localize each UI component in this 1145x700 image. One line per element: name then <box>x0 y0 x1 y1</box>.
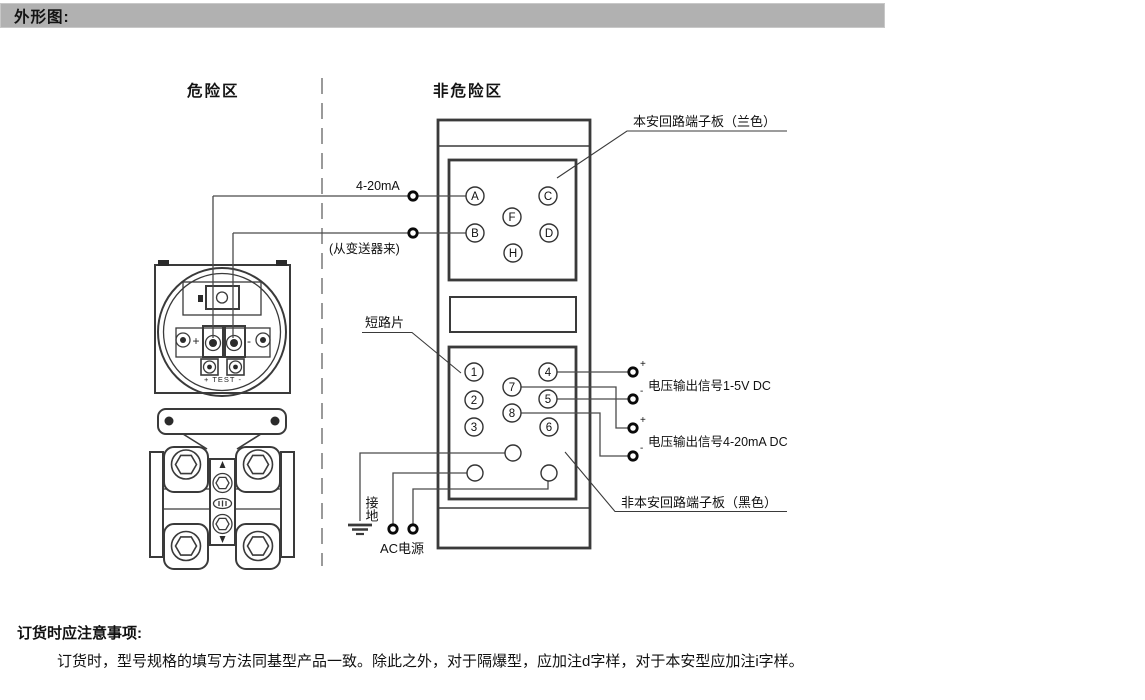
leader-is-board <box>557 131 787 178</box>
mounting-bracket <box>158 409 286 434</box>
window-screw <box>217 292 228 303</box>
junction-dot <box>409 192 417 200</box>
faceplate-mark <box>198 295 203 302</box>
terminal-6-label: 6 <box>546 422 552 434</box>
voltage-1-5v-label: 电压输出信号1-5V DC <box>648 378 771 393</box>
terminal-bolt-plus-center <box>209 339 217 347</box>
ac-power-terminal <box>409 525 417 533</box>
output-terminal-1-5v-plus <box>629 368 637 376</box>
terminal-8-label: 8 <box>509 408 515 420</box>
wire-ac-2 <box>413 481 548 524</box>
polarity-mark: - <box>640 443 643 454</box>
terminal-3: 3 <box>465 418 483 436</box>
strip-screw-left-center <box>180 337 186 343</box>
flange-body <box>150 447 294 569</box>
mounting-hole <box>467 465 483 481</box>
terminal-7: 7 <box>503 378 521 396</box>
test-terminal-left-center <box>207 365 212 370</box>
test-terminal-right-center <box>233 365 238 370</box>
short-bar-label: 短路片 <box>365 315 404 330</box>
terminal-2: 2 <box>465 391 483 409</box>
mounting-hole <box>505 445 521 461</box>
plus-sign: + <box>192 334 199 348</box>
terminal-D: D <box>540 224 558 242</box>
terminal-C-label: C <box>544 191 552 203</box>
polarity-mark: + <box>640 415 646 426</box>
polarity-mark: - <box>640 386 643 397</box>
output-terminal-4-20ma-minus <box>629 452 637 460</box>
is-terminals: A C F B D H <box>466 187 558 262</box>
wiring-diagram: 危险区 非危险区 + - + TEST - <box>0 0 1145 700</box>
terminal-A-label: A <box>471 191 479 203</box>
non-hazardous-zone-label: 非危险区 <box>433 81 503 100</box>
flange-ear <box>164 447 208 492</box>
mounting-hole <box>541 465 557 481</box>
notes-heading: 订货时应注意事项: <box>17 622 1120 643</box>
test-label: + TEST - <box>204 375 242 384</box>
terminal-F: F <box>503 208 521 226</box>
terminal-2-label: 2 <box>471 395 477 407</box>
ground-label: 接地 <box>364 495 379 522</box>
terminal-F-label: F <box>508 212 515 224</box>
bracket-bolt-left <box>165 417 174 426</box>
terminal-6: 6 <box>540 418 558 436</box>
terminal-B: B <box>466 224 484 242</box>
ground-symbol <box>348 525 372 534</box>
terminal-3-label: 3 <box>471 422 477 434</box>
terminal-C: C <box>539 187 557 205</box>
terminal-1-label: 1 <box>471 367 477 379</box>
flange-ear <box>236 447 280 492</box>
output-terminal-1-5v-minus <box>629 395 637 403</box>
board-outline <box>438 120 590 548</box>
polarity-mark: + <box>640 359 646 370</box>
terminal-5: 5 <box>539 390 557 408</box>
leader-short-bar <box>362 333 461 374</box>
side-plate-left <box>150 452 163 557</box>
notes-body: 订货时，型号规格的填写方法同基型产品一致。除此之外，对于隔爆型，应加注d字样，对… <box>57 650 1120 671</box>
ac-power-label: AC电源 <box>380 541 424 556</box>
terminal-bolt-minus-center <box>230 339 238 347</box>
ac-power-terminal <box>389 525 397 533</box>
strip-screw-right-center <box>260 337 266 343</box>
non-is-board-label: 非本安回路端子板（黑色） <box>621 495 777 510</box>
bracket-bolt-right <box>271 417 280 426</box>
terminal-B-label: B <box>471 228 479 240</box>
ordering-notes: 订货时应注意事项: 订货时，型号规格的填写方法同基型产品一致。除此之外，对于隔爆… <box>0 622 1120 671</box>
terminal-4: 4 <box>539 363 557 381</box>
minus-sign: - <box>247 334 251 348</box>
terminal-H-label: H <box>509 248 517 260</box>
terminal-1: 1 <box>465 363 483 381</box>
junction-dot <box>409 229 417 237</box>
housing-corner-mark <box>276 260 287 266</box>
terminal-A: A <box>466 187 484 205</box>
voltage-4-20ma-label: 电压输出信号4-20mA DC <box>648 434 788 449</box>
from-transmitter-label: (从变送器来) <box>329 241 400 256</box>
terminal-7-label: 7 <box>509 382 515 394</box>
terminal-D-label: D <box>545 228 553 240</box>
terminal-H: H <box>504 244 522 262</box>
transmitter-drawing: + - + TEST - <box>150 260 294 569</box>
housing-corner-mark <box>158 260 169 266</box>
side-plate-right <box>281 452 294 557</box>
hazardous-zone-label: 危险区 <box>187 81 240 100</box>
wire-ground <box>360 453 505 521</box>
jumper-box <box>450 297 576 332</box>
terminal-board <box>438 120 590 548</box>
current-loop-label: 4-20mA <box>356 179 400 193</box>
terminal-4-label: 4 <box>545 367 552 379</box>
terminal-5-label: 5 <box>545 394 551 406</box>
non-is-terminals: 1 4 7 2 5 8 3 6 <box>465 363 558 481</box>
output-terminal-4-20ma-plus <box>629 424 637 432</box>
terminal-8: 8 <box>503 404 521 422</box>
transmitter-window <box>206 286 239 309</box>
is-board-label: 本安回路端子板（兰色） <box>633 114 776 129</box>
